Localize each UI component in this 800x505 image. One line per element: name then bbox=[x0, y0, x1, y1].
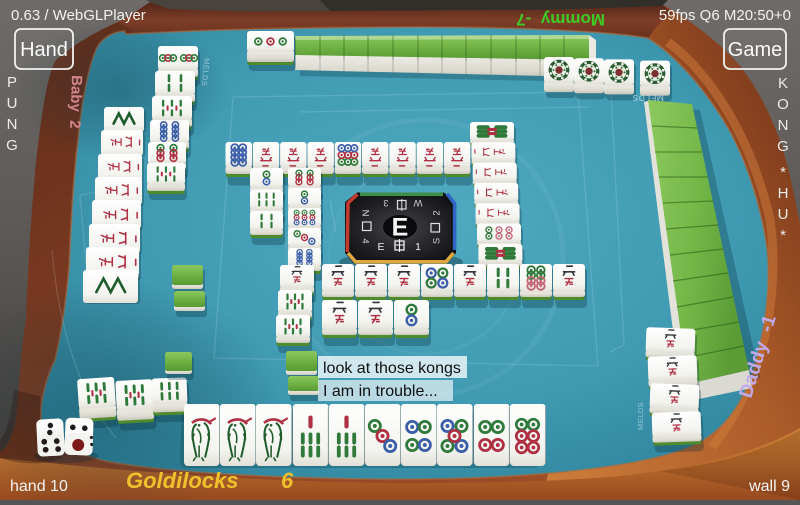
svg-text:59fps Q6 M20:50+0: 59fps Q6 M20:50+0 bbox=[659, 7, 791, 24]
svg-text:wall 9: wall 9 bbox=[748, 478, 790, 495]
svg-text:E: E bbox=[392, 214, 409, 242]
svg-text:*: * bbox=[780, 164, 786, 181]
svg-text:K: K bbox=[778, 75, 788, 92]
svg-text:S: S bbox=[432, 238, 443, 244]
svg-text:Game: Game bbox=[728, 39, 782, 61]
svg-text:I am in trouble...: I am in trouble... bbox=[323, 383, 438, 400]
svg-text:4: 4 bbox=[360, 238, 371, 243]
svg-text:2: 2 bbox=[432, 210, 443, 215]
svg-text:Baby 2: Baby 2 bbox=[66, 75, 85, 129]
svg-text:look at those kongs: look at those kongs bbox=[323, 360, 461, 377]
svg-text:E: E bbox=[377, 241, 384, 253]
svg-text:MELDS: MELDS bbox=[636, 402, 645, 430]
svg-text:H: H bbox=[778, 185, 789, 202]
svg-text:N: N bbox=[7, 116, 18, 133]
svg-text:0.63 / WebGLPlayer: 0.63 / WebGLPlayer bbox=[11, 7, 146, 24]
svg-text:G: G bbox=[6, 137, 18, 154]
svg-text:O: O bbox=[777, 96, 789, 113]
svg-text:*: * bbox=[780, 227, 786, 244]
svg-text:Mommy -7: Mommy -7 bbox=[516, 10, 605, 29]
svg-text:N: N bbox=[360, 210, 371, 217]
svg-text:1: 1 bbox=[415, 241, 421, 253]
svg-text:P: P bbox=[7, 74, 17, 91]
svg-text:Hand: Hand bbox=[20, 39, 68, 61]
svg-text:U: U bbox=[7, 95, 18, 112]
svg-text:hand 10: hand 10 bbox=[10, 478, 68, 495]
svg-text:6: 6 bbox=[281, 468, 294, 493]
svg-text:U: U bbox=[778, 206, 789, 223]
svg-text:W: W bbox=[413, 197, 422, 208]
svg-text:3: 3 bbox=[383, 197, 388, 208]
svg-text:N: N bbox=[778, 117, 789, 134]
svg-text:Goldilocks: Goldilocks bbox=[126, 468, 238, 493]
svg-text:G: G bbox=[777, 138, 789, 155]
